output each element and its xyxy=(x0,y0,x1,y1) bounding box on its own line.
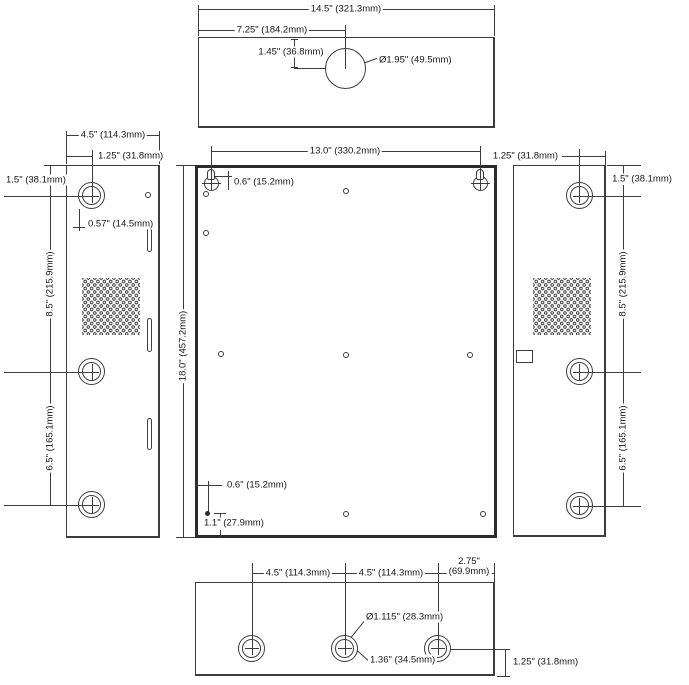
extension-line xyxy=(208,485,209,514)
dim-line xyxy=(228,171,229,190)
corner-hole-mark xyxy=(205,511,210,516)
extension-line xyxy=(198,5,199,36)
leader-line xyxy=(573,196,641,197)
leader-line xyxy=(4,505,99,506)
screw-hole xyxy=(343,352,349,358)
screw-hole xyxy=(203,191,209,197)
tick xyxy=(291,39,298,40)
dim-line xyxy=(66,156,92,157)
extension-line xyxy=(252,563,253,655)
right-spacing-upper-dim-label: 8.5" (215.9mm) xyxy=(618,249,629,318)
right-knockout-inset-dim-label: 1.25" (31.8mm) xyxy=(491,151,560,162)
leader-line xyxy=(215,176,228,177)
dim-line xyxy=(623,185,624,196)
right-vent-grid xyxy=(533,278,591,335)
bottom-knockout-rise-dim-label: 1.25" (31.8mm) xyxy=(511,657,580,668)
cable-slot xyxy=(147,418,152,450)
dim-line xyxy=(505,649,506,676)
tick xyxy=(501,649,508,650)
extension-line xyxy=(494,5,495,36)
leader-line xyxy=(4,196,99,197)
pilot-hole xyxy=(145,192,151,198)
extension-line xyxy=(66,131,67,164)
cable-slot xyxy=(147,318,152,352)
extension-line xyxy=(480,146,481,191)
front-mount-drop-dim-label: 0.6" (15.2mm) xyxy=(232,177,296,188)
front-corner-inset-dim-label: 0.6" (15.2mm) xyxy=(225,480,289,491)
extension-line xyxy=(44,165,66,166)
right-knockout-drop-dim-label: 1.5" (38.1mm) xyxy=(610,174,674,185)
bottom-knockout-diameter-label: Ø1.115" (28.3mm) xyxy=(364,612,445,623)
dim-line xyxy=(220,530,221,537)
dim-line xyxy=(73,227,85,228)
extension-line xyxy=(176,165,195,166)
left-knockout-radius-dim-label: 0.57" (14.5mm) xyxy=(86,219,155,230)
extension-line xyxy=(438,563,439,655)
screw-hole xyxy=(218,351,224,357)
enclosure-dimension-drawing: 14.5" (321.3mm) 7.25" (184.2mm) 1.45" (3… xyxy=(0,0,689,685)
leader-line xyxy=(294,68,327,69)
front-height-dim-label: 18.0" (457.2mm) xyxy=(178,309,189,383)
top-hole-diameter-label: Ø1.95" (49.5mm) xyxy=(377,55,454,66)
screw-hole xyxy=(343,511,349,517)
left-vent-grid xyxy=(82,278,140,335)
bottom-spacing-right-dim-label: 4.5" (114.3mm) xyxy=(357,568,425,579)
knockout-center-mark xyxy=(579,149,580,203)
front-mount-width-dim-label: 13.0" (330.2mm) xyxy=(308,146,382,157)
extension-line xyxy=(607,165,641,166)
left-spacing-lower-dim-label: 6.5" (165.1mm) xyxy=(45,403,56,472)
rectangular-cutout xyxy=(516,350,533,363)
top-width-dim-label: 14.5" (321.3mm) xyxy=(309,4,383,15)
extension-line xyxy=(605,151,606,166)
bottom-edge-offset-mm: (69.9mm) xyxy=(449,567,490,577)
screw-hole xyxy=(203,230,209,236)
screw-hole xyxy=(343,188,349,194)
top-hole-drop-dim-label: 1.45" (36.8mm) xyxy=(256,47,325,58)
leader-line xyxy=(4,372,99,373)
tick xyxy=(501,676,508,677)
leader-line xyxy=(573,372,641,373)
extension-line xyxy=(176,537,195,538)
leader-line xyxy=(573,506,641,507)
dim-line xyxy=(562,156,606,157)
right-spacing-lower-dim-label: 6.5" (165.1mm) xyxy=(618,403,629,472)
left-knockout-inset-dim-label: 1.25" (31.8mm) xyxy=(96,151,165,162)
screw-hole xyxy=(467,352,473,358)
extension-line xyxy=(345,563,346,655)
extension-line xyxy=(211,146,212,191)
top-center-offset-dim-label: 7.25" (184.2mm) xyxy=(235,25,309,36)
left-knockout-drop-dim-label: 1.5" (38.1mm) xyxy=(4,175,68,186)
front-corner-rise-dim-label: 1.1" (27.9mm) xyxy=(202,518,266,529)
bottom-knockout-size-label: 1.36" (34.5mm) xyxy=(368,655,437,666)
left-depth-dim-label: 4.5" (114.3mm) xyxy=(79,130,147,141)
center-line xyxy=(345,25,346,69)
bottom-spacing-left-dim-label: 4.5" (114.3mm) xyxy=(264,568,332,579)
bottom-edge-offset-dim-label: 2.75" (69.9mm) xyxy=(447,557,492,577)
left-spacing-upper-dim-label: 8.5" (215.9mm) xyxy=(45,249,56,318)
screw-hole xyxy=(480,511,486,517)
